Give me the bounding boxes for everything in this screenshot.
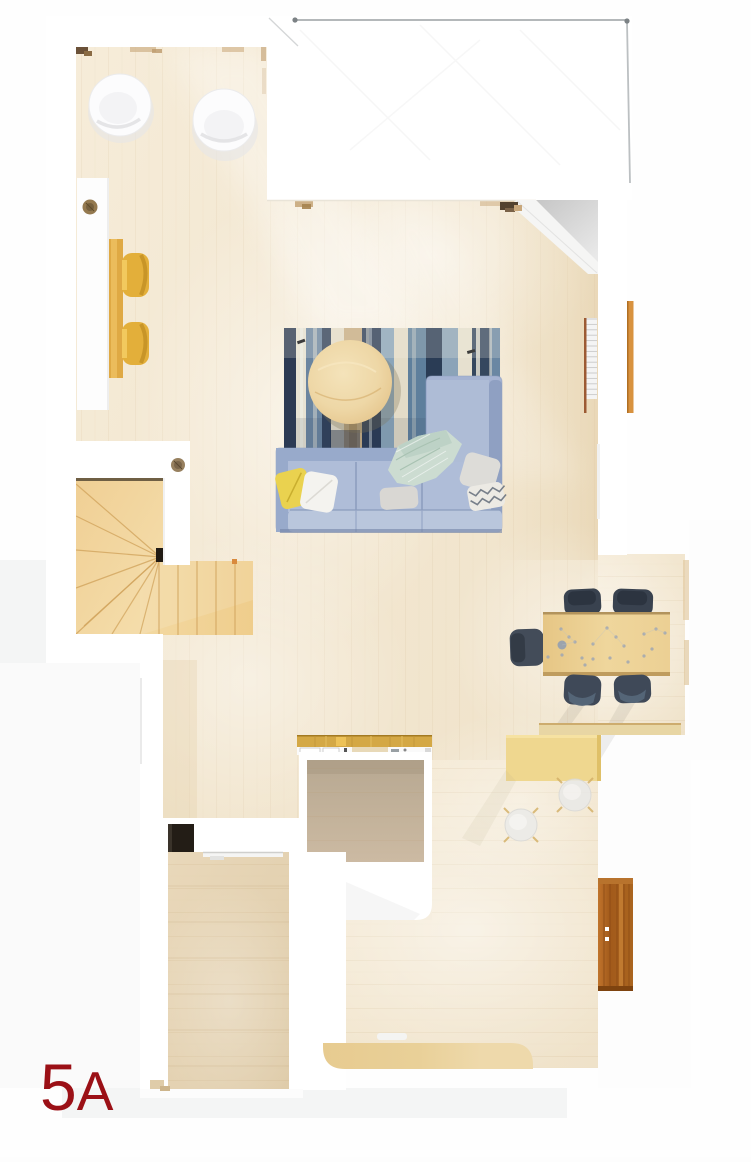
svg-text:5A: 5A [40,1050,114,1124]
